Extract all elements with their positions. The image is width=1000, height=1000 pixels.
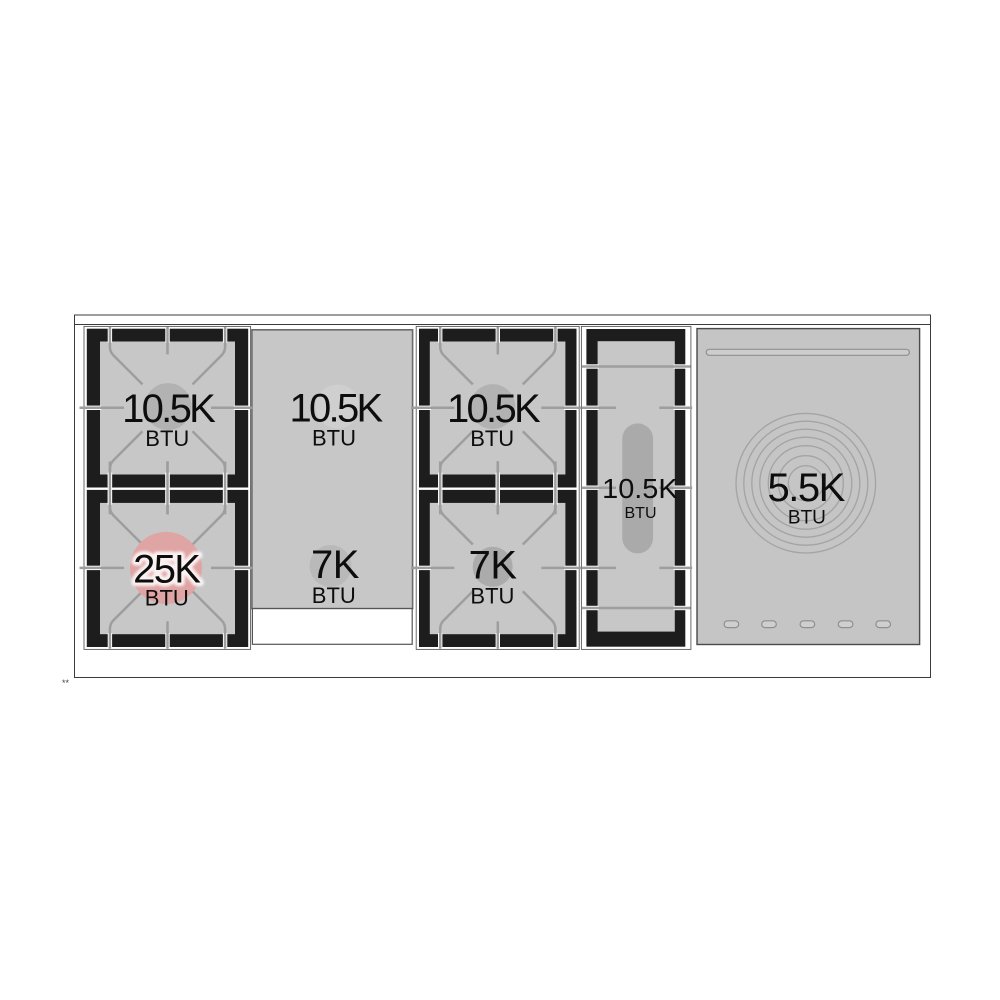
svg-text:7K: 7K	[469, 544, 518, 588]
svg-text:7K: 7K	[311, 543, 360, 587]
svg-text:BTU: BTU	[788, 507, 826, 528]
svg-text:BTU: BTU	[312, 583, 356, 608]
svg-text:5.5K: 5.5K	[768, 466, 846, 510]
svg-text:**: **	[62, 678, 70, 688]
svg-text:BTU: BTU	[625, 505, 657, 522]
svg-text:10.5K: 10.5K	[122, 387, 216, 431]
svg-text:BTU: BTU	[145, 586, 189, 611]
svg-text:10.5K: 10.5K	[447, 387, 541, 431]
svg-text:BTU: BTU	[145, 426, 189, 451]
svg-text:BTU: BTU	[470, 583, 514, 608]
svg-text:BTU: BTU	[312, 425, 356, 450]
svg-text:BTU: BTU	[470, 426, 514, 451]
svg-text:10.5K: 10.5K	[289, 387, 383, 431]
svg-text:10.5K: 10.5K	[602, 473, 678, 504]
